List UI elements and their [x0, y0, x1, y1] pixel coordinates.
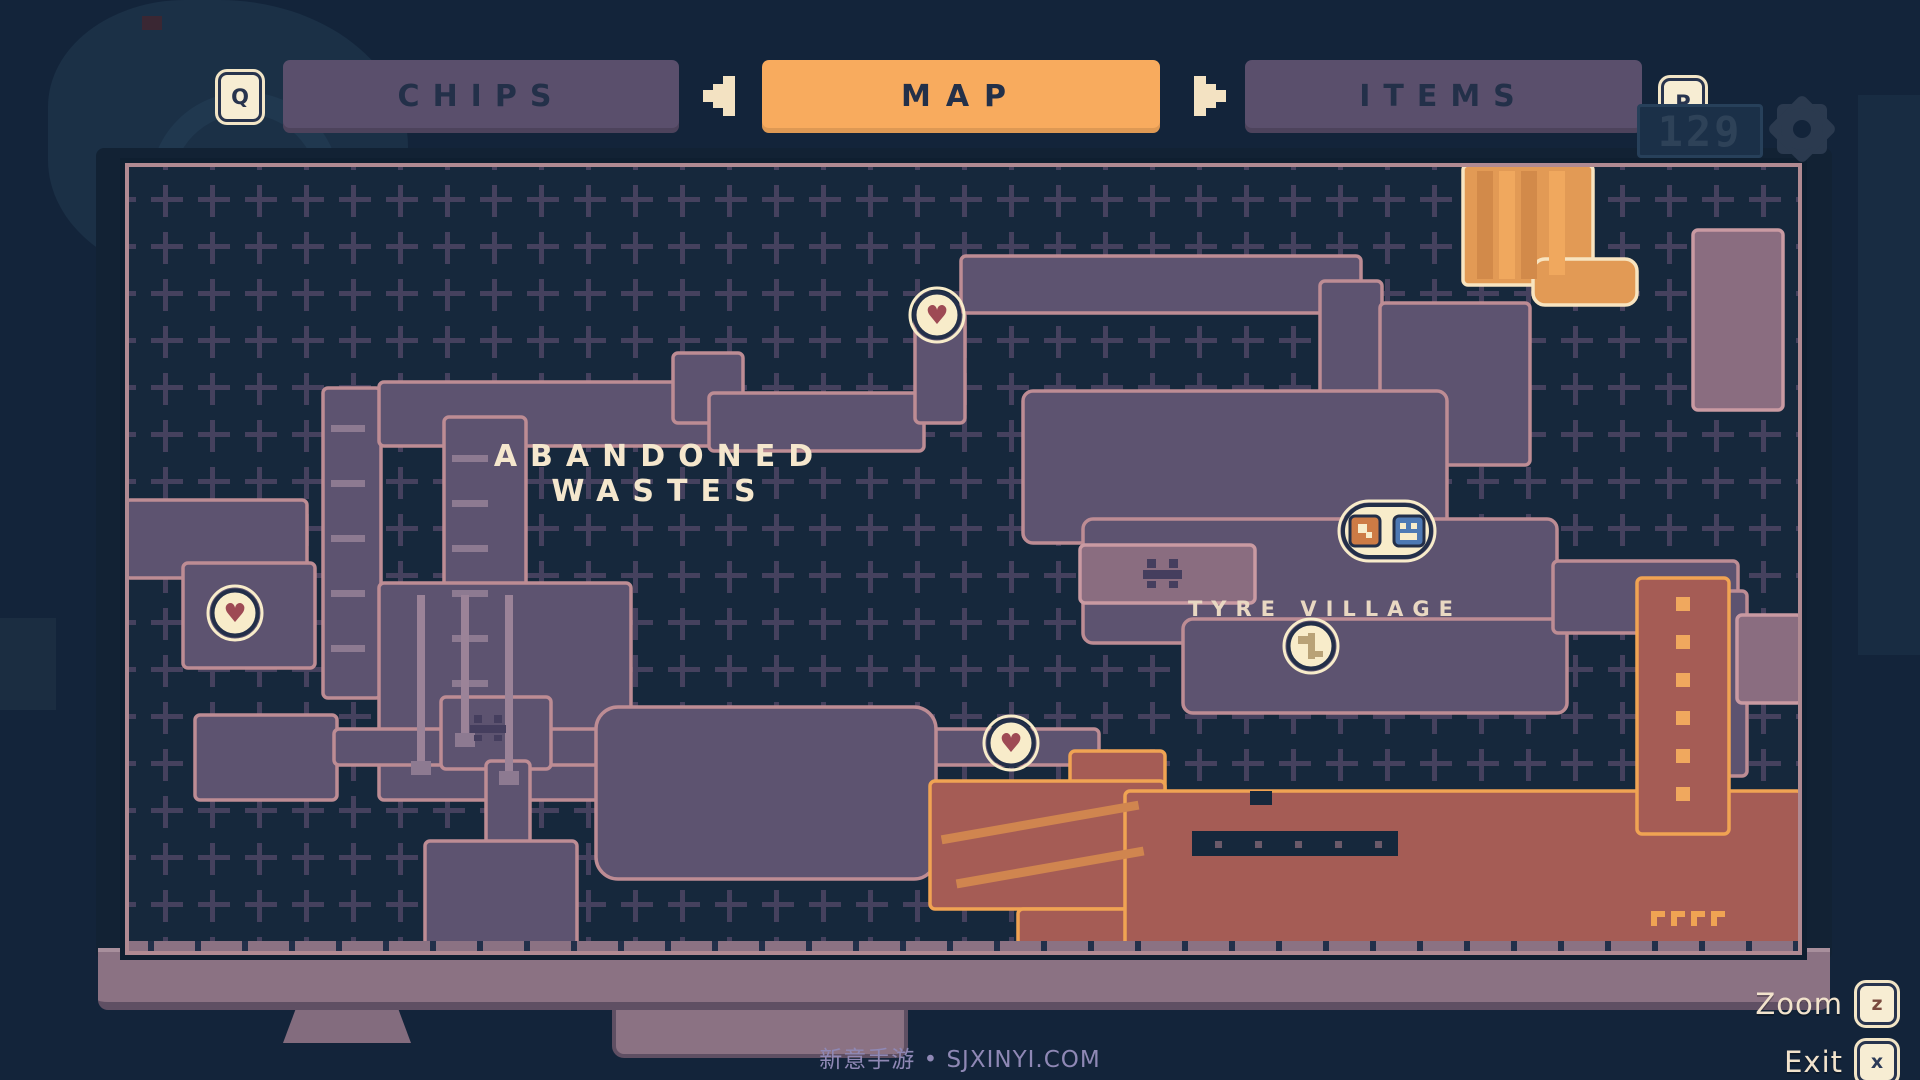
- map-decor: [1711, 911, 1725, 917]
- region-label: ABANDONED WASTES: [395, 439, 925, 509]
- map-decor: [1169, 581, 1178, 588]
- map-decor: [1676, 673, 1690, 687]
- map-room: [1693, 230, 1783, 410]
- village-label: TYRE VILLAGE: [1165, 597, 1485, 621]
- map-decor: [1499, 171, 1515, 279]
- map-decor: [452, 545, 488, 552]
- key-glyph-bar: [1308, 633, 1315, 659]
- tab-chips[interactable]: CHIPS: [283, 60, 679, 133]
- map-decor: [1255, 841, 1262, 848]
- save-station-eye-left: [1400, 523, 1406, 529]
- map-decor: [331, 425, 365, 432]
- map-room: [379, 382, 715, 446]
- map-decor: [470, 725, 506, 733]
- map-decor: [452, 635, 488, 642]
- background-art-left-slab: [0, 618, 56, 710]
- map-decor: [1143, 570, 1182, 579]
- map-decor: [499, 771, 519, 785]
- tab-chips-label: CHIPS: [398, 79, 565, 114]
- map-room: [596, 707, 936, 879]
- map-decor: [411, 761, 431, 775]
- map-decor: [1147, 581, 1156, 588]
- map-decor: [1521, 171, 1537, 279]
- map-decor: [494, 735, 502, 741]
- map-decor: [452, 590, 488, 597]
- map-decor: [1335, 841, 1342, 848]
- save-heart-icon: ♥: [208, 586, 262, 640]
- gear-icon: [1763, 90, 1841, 168]
- map-decor: [1295, 841, 1302, 848]
- map-room: [1737, 615, 1802, 703]
- world-map: ♥♥♥: [125, 163, 1802, 955]
- prev-tab-keycap: Q: [218, 72, 262, 122]
- map-decor: [474, 735, 482, 741]
- shop-icon-dot2: [1366, 532, 1372, 538]
- map-decor: [455, 733, 475, 747]
- map-decor: [1676, 711, 1690, 725]
- map-decor: [1671, 911, 1685, 917]
- save-station-icon: [1394, 516, 1424, 546]
- map-decor: [1676, 749, 1690, 763]
- zoom-button[interactable]: Zoom z: [1625, 983, 1897, 1025]
- save-station-eye-right: [1411, 523, 1417, 529]
- map-panel: ♥♥♥ ABANDONED WASTES TYRE VILLAGE Zoom z…: [125, 163, 1802, 955]
- map-decor: [505, 595, 513, 783]
- watermark: 新意手游 • SJXINYI.COM: [0, 1040, 1920, 1074]
- key-glyph-tooth: [1315, 651, 1323, 657]
- map-decor: [417, 595, 425, 773]
- map-decor: [1375, 841, 1382, 848]
- save-heart-icon: ♥: [984, 716, 1038, 770]
- next-tab-arrow-icon[interactable]: [1194, 76, 1228, 116]
- map-decor: [1549, 171, 1565, 275]
- map-decor: [1676, 635, 1690, 649]
- map-decor: [1711, 917, 1717, 926]
- map-decor: [1651, 911, 1665, 917]
- background-art-red-fleck: [142, 16, 162, 30]
- console-bezel: [98, 948, 1830, 1010]
- key-marker-icon: [1284, 619, 1338, 673]
- map-room: [425, 841, 577, 955]
- map-decor: [331, 535, 365, 542]
- tab-map[interactable]: MAP: [762, 60, 1160, 133]
- map-decor: [1169, 559, 1178, 568]
- currency-counter: 129: [1637, 104, 1763, 158]
- map-room: [195, 715, 337, 800]
- map-decor: [331, 590, 365, 597]
- map-decor: [1691, 911, 1705, 917]
- map-decor: [1676, 787, 1690, 801]
- map-decor: [331, 645, 365, 652]
- save-heart-icon: ♥: [910, 288, 964, 342]
- tab-items[interactable]: ITEMS: [1245, 60, 1642, 133]
- map-decor: [1671, 917, 1677, 926]
- shop-icon-dot: [1358, 524, 1367, 533]
- map-decor: [1250, 791, 1272, 805]
- zoom-keycap: z: [1857, 983, 1897, 1025]
- prev-tab-arrow-icon[interactable]: [701, 76, 735, 116]
- map-decor: [1215, 841, 1222, 848]
- key-glyph-flag: [1298, 636, 1309, 644]
- map-room: [961, 256, 1361, 313]
- heart-glyph: ♥: [999, 729, 1022, 759]
- map-decor: [1691, 917, 1697, 926]
- map-decor: [1477, 171, 1493, 279]
- map-room: [1183, 619, 1567, 713]
- save-station-mouth: [1400, 533, 1417, 540]
- game-screen: ♥♥♥ ABANDONED WASTES TYRE VILLAGE Zoom z…: [0, 0, 1920, 1080]
- background-art-right-slab: [1858, 95, 1920, 655]
- station-pair-icon: [1339, 501, 1435, 561]
- heart-glyph: ♥: [925, 301, 948, 331]
- tab-map-label: MAP: [901, 79, 1021, 114]
- map-decor: [461, 595, 469, 745]
- map-room: [1533, 259, 1637, 305]
- map-decor: [331, 480, 365, 487]
- map-decor: [474, 715, 482, 723]
- map-decor: [1676, 597, 1690, 611]
- zoom-label: Zoom: [1755, 987, 1843, 1021]
- heart-glyph: ♥: [223, 599, 246, 629]
- tab-items-label: ITEMS: [1359, 79, 1528, 114]
- map-decor: [452, 680, 488, 687]
- map-decor: [1147, 559, 1156, 568]
- map-decor: [494, 715, 502, 723]
- map-decor: [1651, 917, 1657, 926]
